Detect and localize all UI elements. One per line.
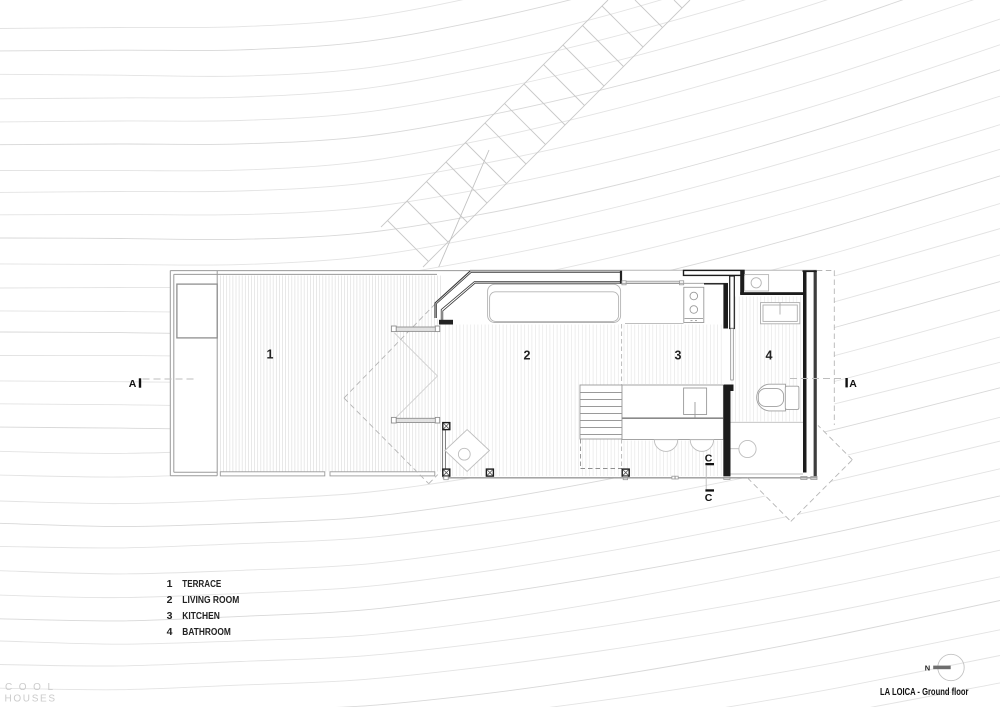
svg-text:TERRACE: TERRACE <box>182 578 221 590</box>
svg-text:BATHROOM: BATHROOM <box>182 626 231 638</box>
svg-text:C: C <box>705 452 713 464</box>
svg-text:N: N <box>925 663 930 672</box>
svg-text:3: 3 <box>167 610 173 622</box>
svg-text:LA LOICA - Ground floor: LA LOICA - Ground floor <box>880 686 969 698</box>
svg-text:A: A <box>849 378 857 390</box>
svg-text:COOL: COOL <box>5 682 53 693</box>
svg-text:4: 4 <box>167 626 173 638</box>
svg-text:1: 1 <box>167 578 173 590</box>
svg-text:C: C <box>705 492 713 504</box>
svg-text:A: A <box>129 378 137 390</box>
svg-text:1: 1 <box>267 347 274 361</box>
svg-text:4: 4 <box>766 348 773 362</box>
svg-text:3: 3 <box>675 348 682 362</box>
svg-text:2: 2 <box>524 348 531 362</box>
svg-text:LIVING ROOM: LIVING ROOM <box>182 594 239 606</box>
svg-text:2: 2 <box>167 594 173 606</box>
svg-text:KITCHEN: KITCHEN <box>182 610 220 622</box>
svg-text:HOUSES: HOUSES <box>5 694 56 705</box>
